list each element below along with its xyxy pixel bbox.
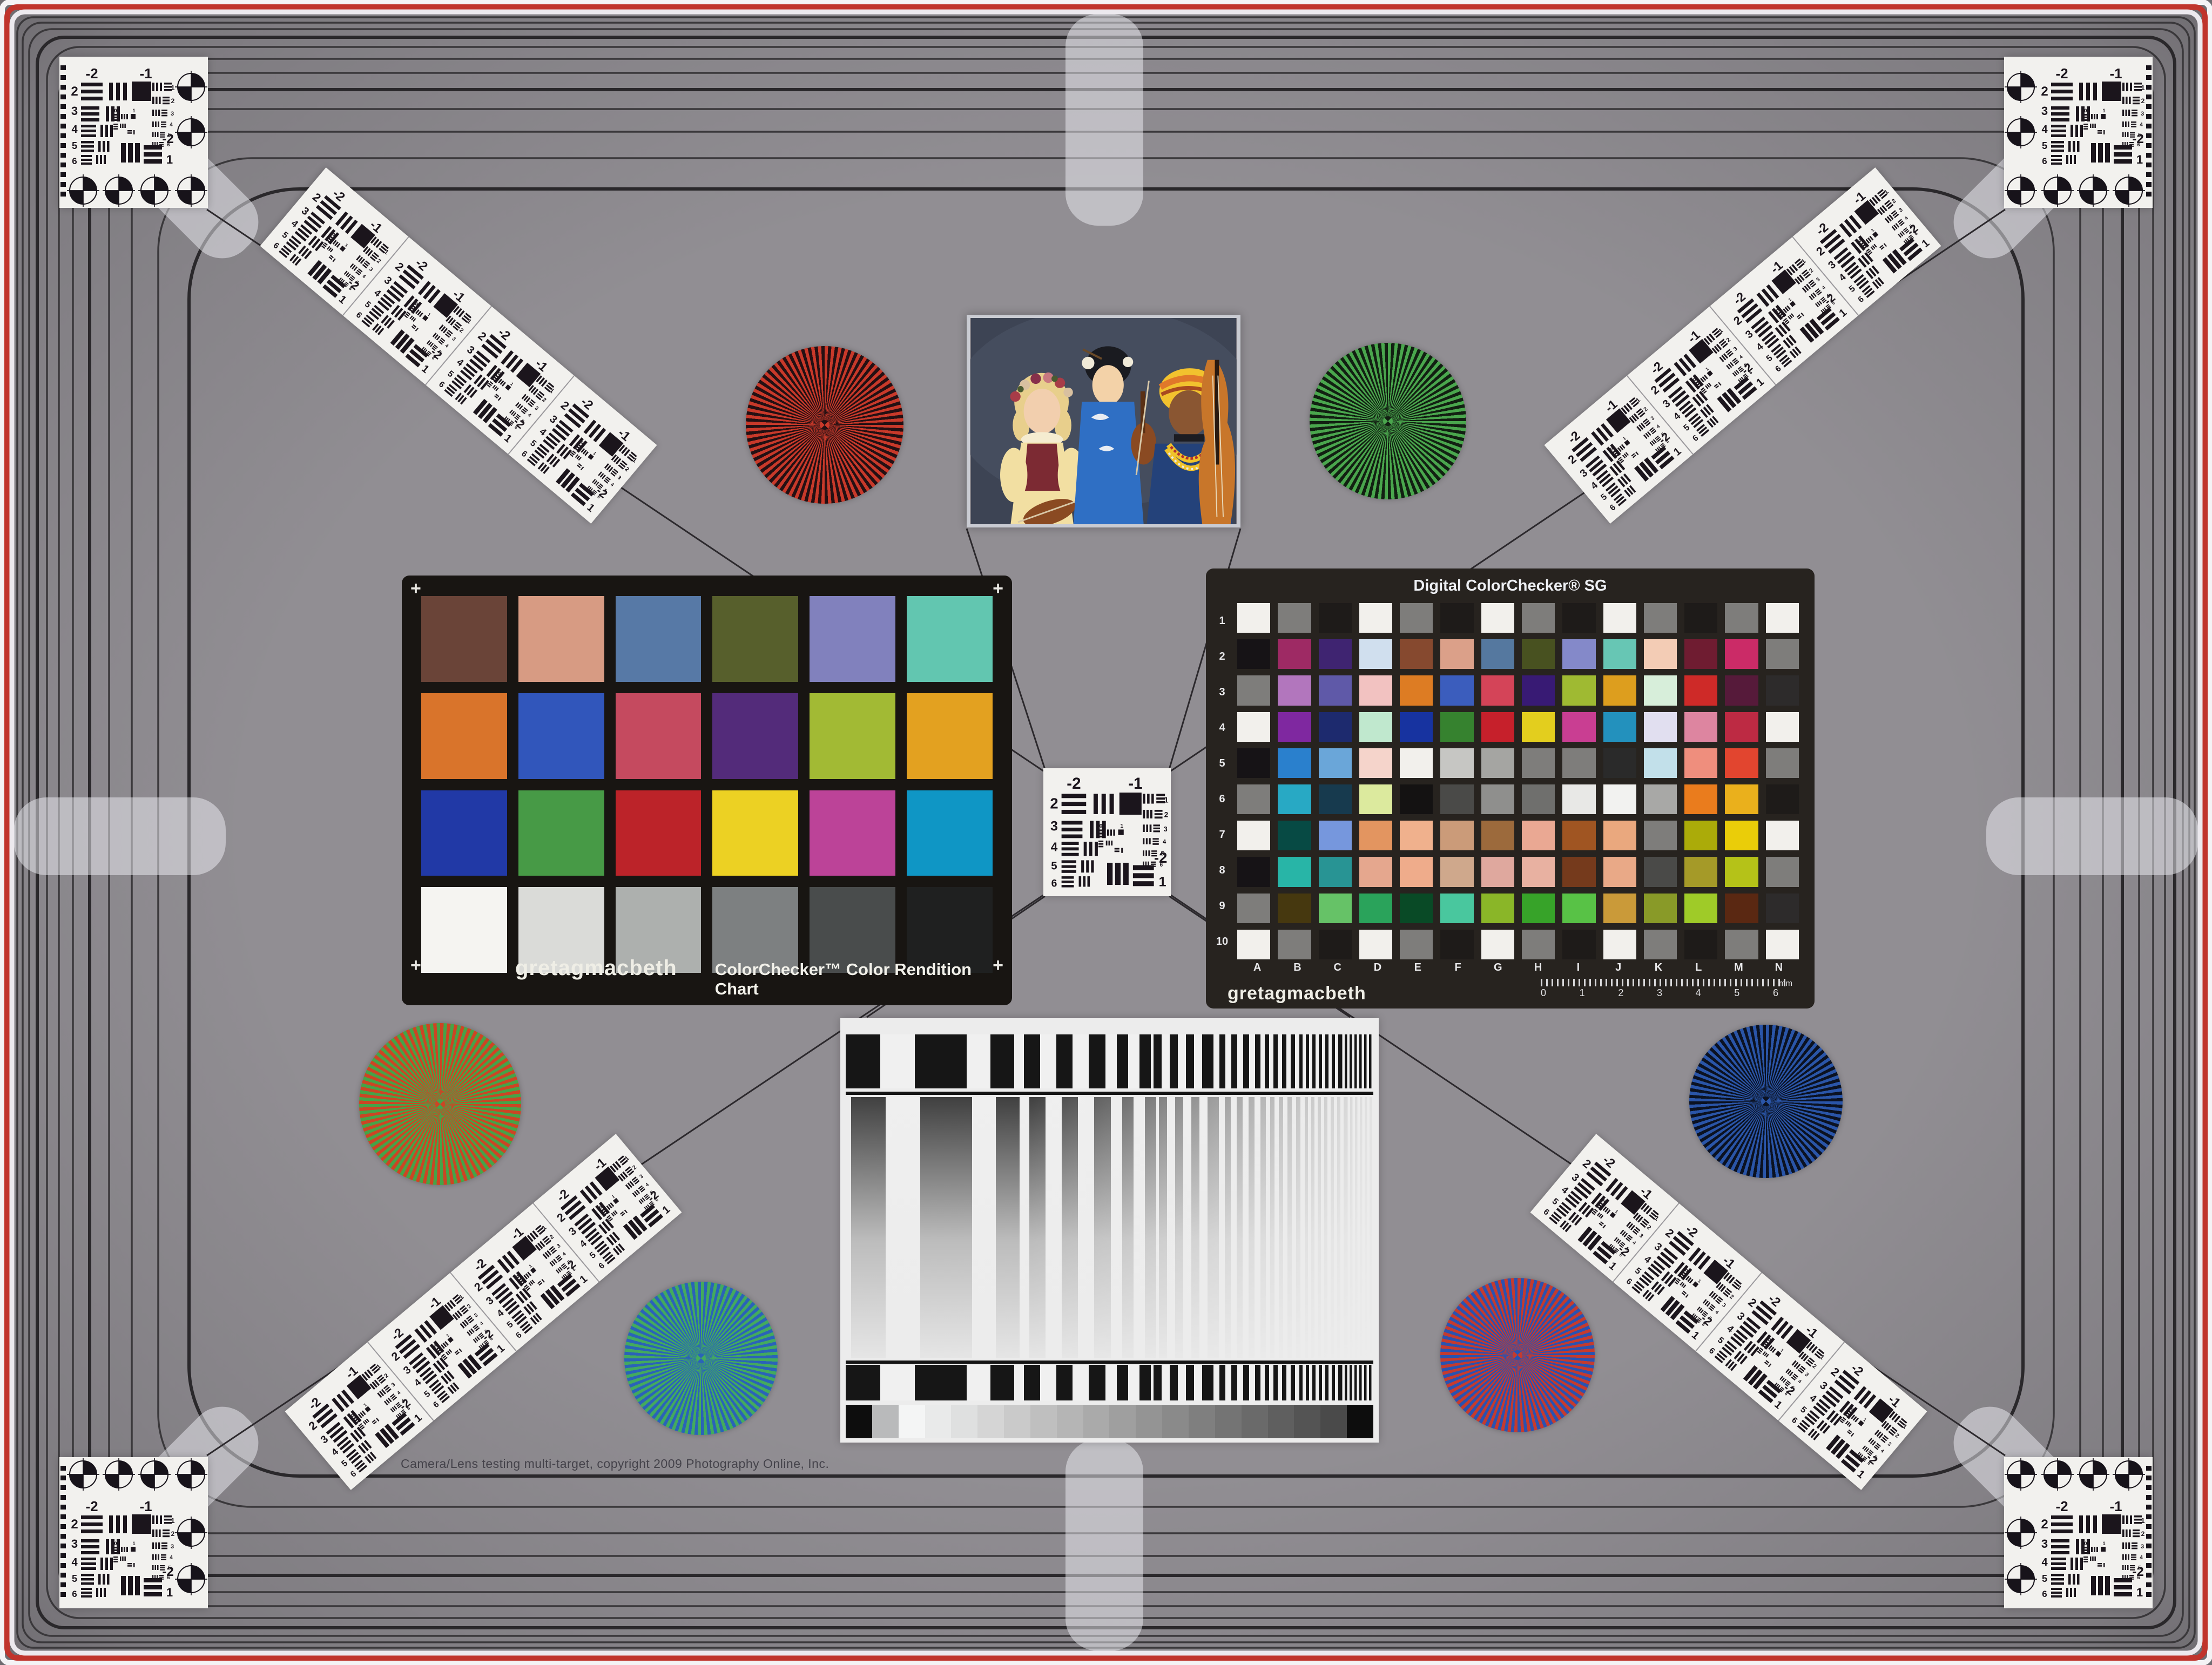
sg-col-label: I	[1558, 962, 1598, 976]
sg-row-label: 2	[1211, 639, 1233, 674]
color-patch	[1522, 748, 1555, 778]
sg-col-label: A	[1237, 962, 1277, 976]
ruler-number: 0	[1541, 987, 1546, 999]
sg-col-label: E	[1398, 962, 1438, 976]
color-patch	[1278, 639, 1311, 669]
gray-step	[1347, 1405, 1373, 1438]
color-patch	[1400, 821, 1433, 850]
sg-row-label: 7	[1211, 817, 1233, 852]
color-patch	[1278, 784, 1311, 814]
color-patch	[1440, 894, 1473, 923]
divider-line	[846, 1361, 1373, 1364]
gray-step	[1004, 1405, 1030, 1438]
color-patch	[1725, 784, 1758, 814]
color-patch	[1562, 639, 1595, 669]
color-patch	[518, 596, 604, 682]
color-patch	[1481, 603, 1514, 633]
color-patch	[712, 693, 798, 779]
color-patch	[1522, 821, 1555, 850]
color-patch	[1278, 894, 1311, 923]
sg-row-label: 5	[1211, 746, 1233, 781]
color-patch	[1562, 894, 1595, 923]
color-patch	[1522, 784, 1555, 814]
ruler-unit: mm	[1779, 979, 1792, 988]
color-patch	[1644, 930, 1677, 959]
color-patch	[1359, 930, 1392, 959]
color-patch	[1237, 748, 1270, 778]
color-patch	[1237, 784, 1270, 814]
gray-step	[1109, 1405, 1136, 1438]
color-patch	[1278, 675, 1311, 705]
star-center-dot	[433, 1097, 447, 1111]
color-patch	[1644, 675, 1677, 705]
color-patch	[1278, 712, 1311, 742]
color-patch	[1440, 712, 1473, 742]
patch-row	[1237, 748, 1799, 778]
color-patch	[1684, 894, 1717, 923]
siemens-star-blue-black	[1689, 1025, 1843, 1178]
siemens-star-red-blue	[1440, 1278, 1595, 1432]
color-patch	[1359, 639, 1392, 669]
color-patch	[1603, 894, 1636, 923]
color-patch	[1400, 784, 1433, 814]
color-patch	[1481, 784, 1514, 814]
color-patch	[1278, 603, 1311, 633]
color-patch	[1237, 857, 1270, 886]
color-patch	[1562, 857, 1595, 886]
color-patch	[810, 596, 895, 682]
color-patch	[1562, 712, 1595, 742]
gray-step	[1083, 1405, 1110, 1438]
color-patch	[1562, 748, 1595, 778]
copyright-text: Camera/Lens testing multi-target, copyri…	[401, 1457, 829, 1471]
color-patch	[1359, 675, 1392, 705]
color-patch	[1562, 784, 1595, 814]
color-patch	[1481, 675, 1514, 705]
sg-col-label: J	[1599, 962, 1638, 976]
color-patch	[1603, 603, 1636, 633]
color-patch	[1359, 712, 1392, 742]
sg-col-label: L	[1678, 962, 1718, 976]
color-patch	[1400, 748, 1433, 778]
color-patch	[1400, 894, 1433, 923]
color-patch	[1481, 821, 1514, 850]
star-center-dot	[1381, 414, 1394, 428]
patch-row	[1237, 784, 1799, 814]
patch-row	[421, 596, 993, 682]
color-patch	[1725, 748, 1758, 778]
sg-title: Digital ColorChecker® SG	[1206, 577, 1815, 595]
color-patch	[1644, 784, 1677, 814]
siemens-star-red-green	[359, 1023, 521, 1185]
gray-step	[1189, 1405, 1215, 1438]
color-patch	[518, 693, 604, 779]
ruler-number: 3	[1657, 987, 1662, 999]
patch-row	[1237, 857, 1799, 886]
color-patch	[1481, 930, 1514, 959]
color-patch	[1481, 639, 1514, 669]
color-patch	[907, 693, 993, 779]
color-patch	[1684, 748, 1717, 778]
color-patch	[1684, 857, 1717, 886]
color-patch	[1522, 857, 1555, 886]
bar-sweep-bottom	[846, 1365, 1373, 1400]
corner-card-bottom-left	[59, 1457, 208, 1608]
color-patch	[518, 790, 604, 876]
color-patch	[1237, 712, 1270, 742]
registration-plus-icon: +	[993, 583, 1003, 594]
color-patch	[1644, 894, 1677, 923]
sg-col-label: M	[1718, 962, 1758, 976]
color-patch	[1684, 639, 1717, 669]
color-patch	[1603, 857, 1636, 886]
color-patch	[1278, 821, 1311, 850]
star-center-dot	[1759, 1094, 1772, 1108]
sg-row-label: 10	[1211, 924, 1233, 959]
test-chart-scene: -2 -1 2 3 4 5 6 1 2 3 4 5 6 -2 1 0 1	[0, 0, 2212, 1665]
color-patch	[712, 596, 798, 682]
color-patch	[421, 596, 507, 682]
patch-row	[421, 790, 993, 876]
color-patch	[1400, 857, 1433, 886]
sg-col-label: D	[1358, 962, 1398, 976]
color-patch	[1644, 639, 1677, 669]
gray-step	[1242, 1405, 1268, 1438]
color-patch	[1319, 857, 1352, 886]
sg-col-label: F	[1438, 962, 1478, 976]
siemens-star-red-black	[746, 346, 903, 504]
center-resolution-card	[1043, 768, 1171, 896]
color-patch	[1603, 821, 1636, 850]
color-patch	[1319, 603, 1352, 633]
star-center-dot	[1510, 1348, 1524, 1362]
gray-step	[951, 1405, 977, 1438]
color-patch	[1319, 675, 1352, 705]
color-patch	[1319, 930, 1352, 959]
color-patch	[1319, 821, 1352, 850]
gray-step	[846, 1405, 872, 1438]
sg-row-label: 6	[1211, 781, 1233, 817]
color-patch	[1359, 821, 1392, 850]
color-patch	[1400, 603, 1433, 633]
color-patch	[1725, 857, 1758, 886]
corner-card-top-right	[2004, 57, 2153, 208]
sg-row-label: 1	[1211, 603, 1233, 639]
color-patch	[1481, 712, 1514, 742]
sg-row-labels: 12345678910	[1211, 603, 1233, 959]
patch-row	[1237, 639, 1799, 669]
color-patch	[1319, 748, 1352, 778]
siemens-star-green-black	[1310, 343, 1466, 499]
colorchecker-grid	[421, 596, 993, 973]
color-patch	[1522, 894, 1555, 923]
color-patch	[1562, 930, 1595, 959]
color-patch	[1766, 930, 1799, 959]
corner-card-bottom-right	[2004, 1457, 2153, 1608]
color-patch	[1237, 639, 1270, 669]
ruler-ticks	[1541, 979, 1789, 986]
color-patch	[1725, 894, 1758, 923]
color-patch	[1237, 894, 1270, 923]
ruler-number: 1	[1580, 987, 1585, 999]
ruler-numbers: 0123456	[1541, 987, 1778, 999]
color-patch	[1440, 603, 1473, 633]
gray-step	[872, 1405, 899, 1438]
gray-step	[1215, 1405, 1242, 1438]
gretagmacbeth-brand: gretagmacbeth	[1228, 983, 1366, 1004]
gray-step	[1057, 1405, 1083, 1438]
color-patch	[1766, 603, 1799, 633]
sg-ruler: 0123456 mm	[1541, 979, 1789, 999]
color-patch	[1684, 784, 1717, 814]
color-patch	[1766, 821, 1799, 850]
musicians-test-photo	[967, 315, 1240, 527]
color-patch	[1522, 675, 1555, 705]
color-patch	[1684, 603, 1717, 633]
color-patch	[1319, 712, 1352, 742]
color-patch	[1440, 748, 1473, 778]
sg-col-label: G	[1478, 962, 1518, 976]
star-center-dot	[694, 1351, 707, 1365]
color-patch	[1725, 821, 1758, 850]
color-patch	[1400, 675, 1433, 705]
color-patch	[1278, 857, 1311, 886]
sg-grid	[1237, 603, 1799, 959]
color-patch	[1603, 675, 1636, 705]
color-patch	[1603, 784, 1636, 814]
color-patch	[616, 596, 702, 682]
gray-step	[899, 1405, 925, 1438]
patch-row	[1237, 712, 1799, 742]
sg-col-label: H	[1518, 962, 1558, 976]
color-patch	[1359, 603, 1392, 633]
color-patch	[1359, 748, 1392, 778]
patch-row	[1237, 675, 1799, 705]
gray-step	[1320, 1405, 1347, 1438]
ruler-number: 6	[1773, 987, 1778, 999]
patch-row	[1237, 930, 1799, 959]
gray-step	[977, 1405, 1004, 1438]
color-patch	[1237, 821, 1270, 850]
gray-step	[1268, 1405, 1294, 1438]
color-patch	[1644, 603, 1677, 633]
color-patch	[1684, 675, 1717, 705]
patch-row	[421, 693, 993, 779]
gray-step	[1136, 1405, 1162, 1438]
color-patch	[1684, 712, 1717, 742]
gray-step	[1030, 1405, 1057, 1438]
color-patch	[1481, 748, 1514, 778]
color-patch	[1644, 857, 1677, 886]
color-patch	[1359, 857, 1392, 886]
color-patch	[1603, 712, 1636, 742]
color-patch	[1400, 712, 1433, 742]
color-patch	[1359, 894, 1392, 923]
colorchecker-sg-chart: Digital ColorChecker® SG 12345678910 ABC…	[1206, 568, 1815, 1009]
color-patch	[1440, 821, 1473, 850]
color-patch	[1237, 930, 1270, 959]
color-patch	[1562, 603, 1595, 633]
color-patch	[1644, 712, 1677, 742]
color-patch	[1725, 603, 1758, 633]
star-center-dot	[818, 418, 831, 431]
color-patch	[1359, 784, 1392, 814]
gretagmacbeth-brand: gretagmacbeth	[515, 956, 677, 980]
divider-line	[846, 1092, 1373, 1095]
gray-step	[1294, 1405, 1320, 1438]
color-patch	[1725, 675, 1758, 705]
color-patch	[421, 693, 507, 779]
colorchecker-title: ColorChecker™ Color Rendition Chart	[715, 960, 1012, 999]
color-patch	[1766, 639, 1799, 669]
color-patch	[1278, 748, 1311, 778]
color-patch	[810, 693, 895, 779]
color-patch	[1603, 930, 1636, 959]
color-patch	[1684, 930, 1717, 959]
color-patch	[1725, 712, 1758, 742]
color-patch	[421, 790, 507, 876]
color-patch	[1400, 639, 1433, 669]
frequency-sweep-chart	[840, 1018, 1379, 1443]
ruler-number: 4	[1696, 987, 1701, 999]
color-patch	[1522, 603, 1555, 633]
sine-sweep-area	[846, 1097, 1373, 1358]
sg-col-label: B	[1277, 962, 1317, 976]
registration-plus-icon: +	[410, 583, 421, 594]
color-patch	[1766, 894, 1799, 923]
color-patch	[1725, 930, 1758, 959]
gray-step	[925, 1405, 952, 1438]
bar-sweep-top	[846, 1034, 1373, 1088]
ruler-number: 2	[1618, 987, 1623, 999]
ruler-number: 5	[1734, 987, 1739, 999]
sg-col-label: K	[1638, 962, 1678, 976]
color-patch	[907, 596, 993, 682]
color-patch	[1440, 930, 1473, 959]
color-patch	[1522, 930, 1555, 959]
color-patch	[616, 790, 702, 876]
sg-row-label: 4	[1211, 710, 1233, 746]
sg-row-label: 9	[1211, 888, 1233, 924]
color-patch	[1522, 712, 1555, 742]
color-patch	[1237, 603, 1270, 633]
color-patch	[810, 790, 895, 876]
color-patch	[1766, 748, 1799, 778]
color-patch	[1278, 930, 1311, 959]
color-patch	[1562, 821, 1595, 850]
siemens-star-green-blue	[624, 1282, 778, 1435]
color-patch	[1400, 930, 1433, 959]
color-patch	[1440, 639, 1473, 669]
patch-row	[1237, 603, 1799, 633]
gray-step	[1162, 1405, 1189, 1438]
color-patch	[1603, 748, 1636, 778]
color-patch	[1725, 639, 1758, 669]
color-patch	[616, 693, 702, 779]
color-patch	[1644, 821, 1677, 850]
color-patch	[1440, 784, 1473, 814]
corner-card-top-left	[59, 57, 208, 208]
colorchecker-24-chart: + + + + gretagmacbeth ColorChecker™ Colo…	[402, 576, 1012, 1005]
patch-row	[1237, 821, 1799, 850]
color-patch	[1644, 748, 1677, 778]
sg-col-labels: ABCDEFGHIJKLMN	[1237, 962, 1799, 976]
color-patch	[712, 790, 798, 876]
color-patch	[1319, 894, 1352, 923]
sg-row-label: 8	[1211, 852, 1233, 888]
color-patch	[1766, 675, 1799, 705]
color-patch	[1522, 639, 1555, 669]
color-patch	[1237, 675, 1270, 705]
color-patch	[1562, 675, 1595, 705]
color-patch	[1481, 894, 1514, 923]
color-patch	[1319, 784, 1352, 814]
color-patch	[1766, 712, 1799, 742]
color-patch	[1766, 784, 1799, 814]
color-patch	[1684, 821, 1717, 850]
color-patch	[1319, 639, 1352, 669]
color-patch	[1481, 857, 1514, 886]
color-patch	[1440, 675, 1473, 705]
sg-col-label: C	[1318, 962, 1358, 976]
sg-col-label: N	[1759, 962, 1799, 976]
color-patch	[1603, 639, 1636, 669]
color-patch	[1766, 857, 1799, 886]
sg-row-label: 3	[1211, 674, 1233, 710]
grayscale-step-wedge	[846, 1405, 1373, 1438]
patch-row	[1237, 894, 1799, 923]
color-patch	[907, 790, 993, 876]
color-patch	[1440, 857, 1473, 886]
